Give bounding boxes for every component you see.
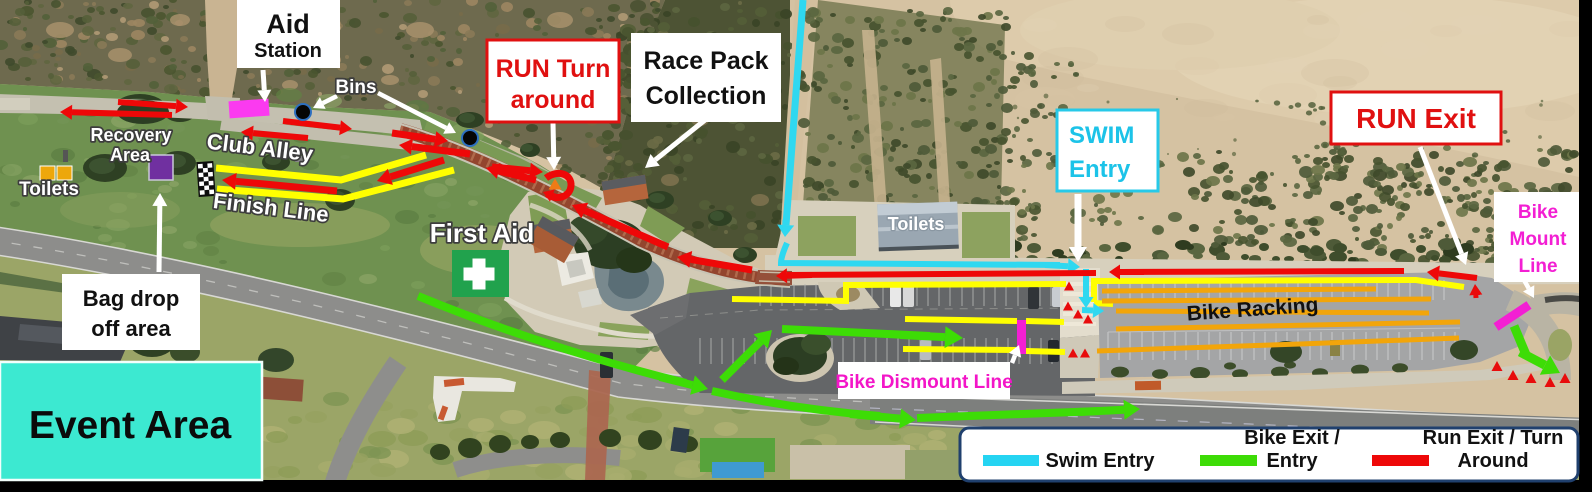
- svg-text:Station: Station: [254, 40, 322, 62]
- svg-text:Race Pack: Race Pack: [643, 47, 768, 75]
- svg-text:Event Area: Event Area: [29, 404, 232, 447]
- svg-text:Recovery: Recovery: [90, 125, 171, 145]
- svg-text:Aid: Aid: [266, 9, 310, 39]
- svg-text:First Aid: First Aid: [430, 218, 534, 248]
- svg-text:Run Exit / Turn: Run Exit / Turn: [1423, 427, 1564, 449]
- svg-text:SWIM: SWIM: [1069, 122, 1134, 149]
- svg-text:Toilets: Toilets: [19, 179, 79, 200]
- svg-text:around: around: [511, 86, 596, 114]
- svg-text:Area: Area: [110, 145, 151, 165]
- svg-text:Entry: Entry: [1069, 156, 1131, 183]
- svg-text:RUN Turn: RUN Turn: [496, 55, 611, 83]
- svg-text:Bike: Bike: [1518, 202, 1558, 223]
- svg-text:RUN Exit: RUN Exit: [1356, 103, 1476, 134]
- svg-text:Bag drop: Bag drop: [83, 286, 180, 311]
- svg-text:Around: Around: [1457, 450, 1528, 472]
- svg-text:Toilets: Toilets: [888, 214, 945, 234]
- svg-text:Mount: Mount: [1510, 229, 1568, 250]
- svg-text:Swim Entry: Swim Entry: [1046, 450, 1156, 472]
- svg-text:Bins: Bins: [335, 77, 376, 98]
- svg-text:Entry: Entry: [1266, 450, 1318, 472]
- svg-text:Collection: Collection: [646, 82, 767, 110]
- svg-text:Line: Line: [1518, 256, 1557, 277]
- svg-text:Bike Exit /: Bike Exit /: [1244, 427, 1340, 449]
- svg-text:off area: off area: [91, 316, 171, 341]
- svg-text:Bike Dismount Line: Bike Dismount Line: [835, 372, 1012, 393]
